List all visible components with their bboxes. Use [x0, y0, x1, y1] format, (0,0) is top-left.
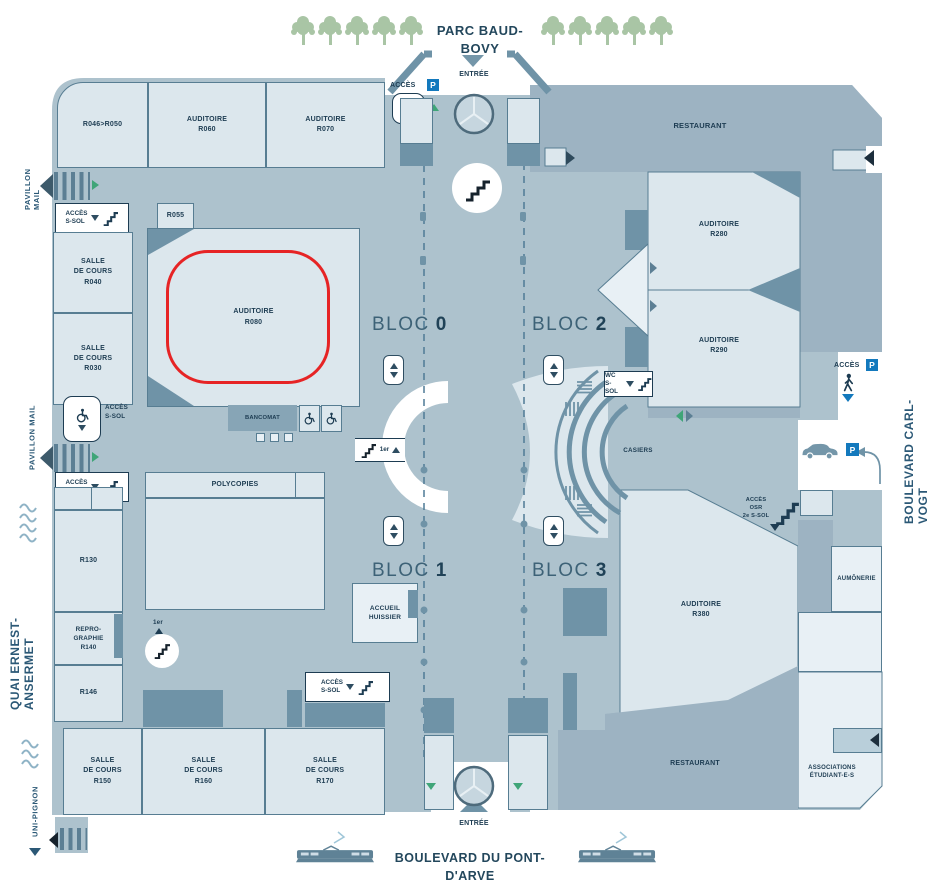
- room-label: AUDITOIRE R080: [233, 307, 273, 327]
- bloc-3-label: BLOC3: [532, 560, 608, 582]
- bancomat-label: BANCOMAT: [245, 414, 280, 422]
- room-r080: AUDITOIRE R080: [147, 228, 360, 407]
- up-arrow-icon: [550, 524, 558, 530]
- small-square-3: [284, 433, 293, 442]
- walkway-hatch-top: [54, 172, 90, 200]
- room-r280-label: AUDITOIRE R280: [690, 220, 748, 240]
- room-r055: R055: [157, 203, 194, 229]
- bloc-1-label: BLOC1: [372, 560, 448, 582]
- room-polycopies-body: [145, 498, 325, 610]
- stairs-icon: [153, 643, 171, 659]
- up-arrow-icon: [390, 524, 398, 530]
- room-label: POLYCOPIES: [212, 480, 259, 490]
- wall-block-3: [305, 703, 385, 727]
- street-uni-pignon: UNI-PIGNON: [28, 782, 42, 842]
- room-r170: SALLE DE COURS R170: [265, 728, 385, 815]
- street-pavillon-mail-top: PAVILLON MAIL: [24, 146, 40, 210]
- entrance-flank-left: [400, 98, 433, 144]
- street-boulevard-pont-darve: BOULEVARD DU PONT-D'ARVE: [380, 850, 560, 880]
- elevator-bloc2: [543, 355, 564, 385]
- room-r046-r050: R046>R050: [57, 82, 148, 168]
- entrance-flank-left-wall: [400, 144, 433, 166]
- acces-s-sol-box-1: ACCÈS S-SOL: [55, 203, 129, 233]
- room-label: R046>R050: [83, 120, 122, 130]
- street-pavillon-mail-mid: PAVILLON MAIL: [24, 392, 40, 482]
- acces-p-right-label: ACCÈS: [834, 361, 866, 371]
- small-square-1: [256, 433, 265, 442]
- entrance-arrow-top: [462, 55, 484, 67]
- south-flank-right: [508, 735, 548, 810]
- elevator-bloc0: [383, 355, 404, 385]
- walkway-arrow-left-top: [40, 174, 53, 198]
- room-r380-label: AUDITOIRE R380: [670, 600, 732, 620]
- restaurant-top-label: RESTAURANT: [640, 121, 760, 132]
- room-polycopies-header: POLYCOPIES: [145, 472, 325, 498]
- room-label: AUMÔNERIE: [837, 575, 875, 584]
- restaurant-bottom-label: RESTAURANT: [640, 759, 750, 769]
- stairs-icon: [360, 443, 377, 458]
- down-arrow-icon: [390, 533, 398, 539]
- room-r150: SALLE DE COURS R150: [63, 728, 142, 815]
- room-aumonerie: AUMÔNERIE: [831, 546, 882, 612]
- r080-corner-wedge-tl: [148, 229, 194, 255]
- wheelchair-icon: [325, 412, 338, 425]
- bloc-name: BLOC: [372, 314, 430, 336]
- room-label: SALLE DE COURS R160: [184, 756, 223, 786]
- room-label: R055: [167, 211, 185, 221]
- room-label: SALLE DE COURS R150: [83, 756, 122, 786]
- entrance-bottom-label: ENTRÉE: [450, 819, 498, 829]
- small-square-2: [270, 433, 279, 442]
- entrance-top-label: ENTRÉE: [450, 70, 498, 80]
- green-arrow-south-right: [513, 783, 523, 790]
- south-flank-left-wall: [424, 698, 454, 733]
- down-arrow-icon: [550, 533, 558, 539]
- acces-s-sol-wheelchair-box: [63, 396, 101, 442]
- room-r146: R146: [54, 665, 123, 722]
- casiers-label: CASIERS: [615, 447, 661, 456]
- parking-badge-right: P: [866, 359, 878, 371]
- room-label: ACCUEIL HUISSIER: [369, 604, 401, 623]
- cell-divider: [295, 473, 296, 497]
- room-label: AUDITOIRE R060: [187, 115, 227, 135]
- blue-down-arrow: [842, 394, 854, 402]
- down-arrow-icon: [78, 425, 86, 431]
- room-r040: SALLE DE COURS R040: [53, 232, 133, 313]
- room-label: R130: [80, 556, 98, 566]
- south-flank-left: [424, 735, 454, 810]
- stairs-1er-label: 1er: [147, 619, 169, 628]
- green-arrow-mid: [92, 452, 99, 462]
- south-flank-right-wall: [508, 698, 548, 733]
- acces-s-sol-label: ACCÈS S-SOL: [321, 679, 343, 695]
- bloc-0-label: BLOC0: [372, 314, 448, 336]
- parking-badge-car: P: [846, 443, 859, 456]
- osr-landing-tab: [800, 490, 833, 516]
- walkway-hatch-mid: [54, 444, 90, 472]
- down-arrow-icon: [770, 524, 780, 531]
- stairs-icon: [774, 501, 800, 525]
- wheelchair-icon: [75, 408, 90, 423]
- floor-plan: PARC BAUD-BOVY PAVILLON MAIL PAVILLON MA…: [0, 0, 933, 880]
- acces-osr-label: ACCÈS OSR 2e S-SOL: [736, 497, 776, 520]
- green-arrow-top: [92, 180, 99, 190]
- stairs-icon: [357, 680, 374, 695]
- parc-baud-bovy-label: PARC BAUD-BOVY: [424, 22, 536, 58]
- r130-top-cells: [54, 487, 123, 510]
- stairs-icon: [637, 377, 652, 391]
- down-arrow-icon: [91, 215, 99, 221]
- down-arrow-icon: [550, 372, 558, 378]
- room-label: SALLE DE COURS R040: [74, 257, 113, 287]
- up-arrow-icon: [390, 363, 398, 369]
- wheelchair-icon: [303, 412, 316, 425]
- bloc-number: 2: [596, 314, 608, 336]
- room-unlabeled: [798, 612, 882, 672]
- associations-entry-arrow: [870, 733, 879, 747]
- central-stairs-circle: [452, 163, 502, 213]
- bloc-name: BLOC: [532, 314, 590, 336]
- stairs-1er-circle: [145, 634, 179, 668]
- room-r290-label: AUDITOIRE R290: [690, 336, 748, 356]
- up-arrow-icon: [392, 447, 400, 453]
- acces-p-top-label: ACCÈS: [390, 81, 424, 91]
- green-arrow-south-left: [426, 783, 436, 790]
- bancomat-strip: BANCOMAT: [228, 405, 297, 431]
- bloc-number: 3: [596, 560, 608, 582]
- stairs-1er-box: 1er: [355, 438, 405, 462]
- stairs-icon: [102, 211, 119, 226]
- room-associations-label: ASSOCIATIONS ÉTUDIANT-E-S: [802, 764, 862, 781]
- stairs-1er-label: 1er: [380, 446, 389, 454]
- pedestrian-icon: [841, 373, 855, 393]
- bloc-number: 0: [436, 314, 448, 336]
- room-r030: SALLE DE COURS R030: [53, 313, 133, 405]
- bloc-2-label: BLOC2: [532, 314, 608, 336]
- room-r160: SALLE DE COURS R160: [142, 728, 265, 815]
- acces-s-sol-box-3: ACCÈS S-SOL: [305, 672, 390, 702]
- room-label: SALLE DE COURS R030: [74, 344, 113, 374]
- r080-corner-wedge-bl: [148, 376, 194, 406]
- wc-s-sol-box: WC S-SOL: [604, 371, 653, 397]
- parking-badge-top: P: [427, 79, 439, 91]
- room-r070: AUDITOIRE R070: [266, 82, 385, 168]
- down-arrow-icon: [346, 684, 354, 690]
- r140-wall-tab: [114, 614, 123, 658]
- room-label: REPRO- GRAPHIE R140: [73, 625, 103, 652]
- walkway-arrow-left-mid: [40, 446, 53, 470]
- elevator-bloc1: [383, 516, 404, 546]
- uni-pignon-arrow: [29, 848, 41, 856]
- accueil-wall-tab: [408, 590, 418, 618]
- room-r130: R130: [54, 510, 123, 612]
- entrance-flank-right-wall: [507, 144, 540, 166]
- room-r060: AUDITOIRE R060: [148, 82, 266, 168]
- down-arrow-icon: [626, 381, 634, 387]
- wall-block-2: [287, 690, 302, 727]
- elevator-bloc3: [543, 516, 564, 546]
- wc-s-sol-label: WC S-SOL: [605, 372, 623, 397]
- up-arrow-icon: [550, 363, 558, 369]
- walkway-arrow-left-bottom: [49, 832, 58, 848]
- entrance-flank-right: [507, 98, 540, 144]
- wheelchair-cell-1: [299, 405, 320, 432]
- street-quai-ernest-ansermet: QUAI ERNEST-ANSERMET: [12, 552, 32, 710]
- bloc-name: BLOC: [532, 560, 590, 582]
- walkway-hatch-bottom: [60, 828, 87, 850]
- bloc-number: 1: [436, 560, 448, 582]
- room-label: R146: [80, 688, 98, 698]
- acces-s-sol-wheelchair-label: ACCÈS S-SOL: [105, 404, 155, 422]
- room-label: AUDITOIRE R070: [305, 115, 345, 135]
- wheelchair-cell-2: [321, 405, 342, 432]
- street-boulevard-carl-vogt: BOULEVARD CARL-VOGT: [906, 372, 926, 524]
- down-arrow-icon: [390, 372, 398, 378]
- wall-block-1: [143, 690, 223, 727]
- room-label: SALLE DE COURS R170: [306, 756, 345, 786]
- room-r140: REPRO- GRAPHIE R140: [54, 612, 123, 665]
- bloc-name: BLOC: [372, 560, 430, 582]
- cell-divider: [91, 488, 92, 509]
- acces-s-sol-label: ACCÈS S-SOL: [65, 210, 87, 226]
